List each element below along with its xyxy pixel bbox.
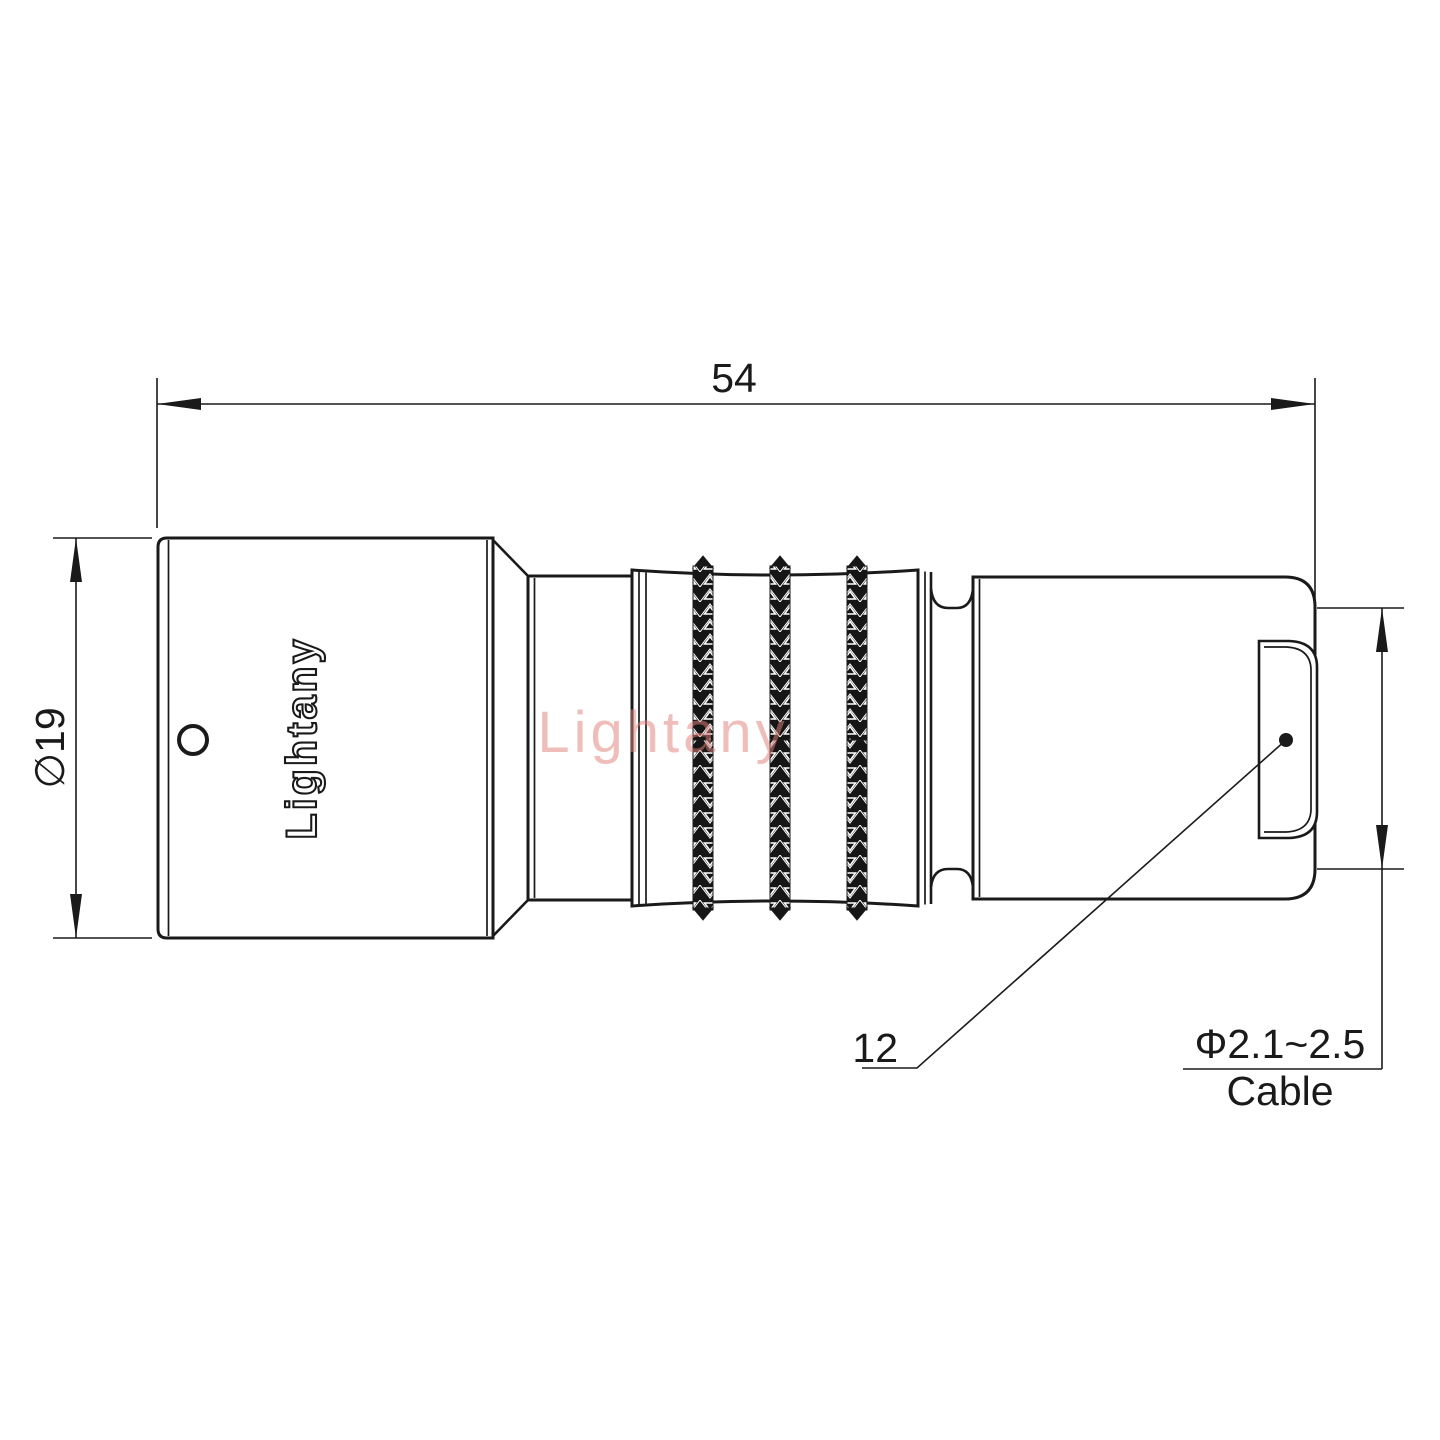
- dimension-rear-face: [1317, 608, 1404, 1069]
- taper-bottom-line: [493, 900, 528, 936]
- body-logo-text: Lightany: [278, 636, 326, 839]
- watermark-text: Lightany: [537, 700, 788, 765]
- neck-bottom-profile: [931, 869, 973, 887]
- dim-value-rear-face: 12: [852, 1025, 898, 1071]
- arrowhead-down: [70, 894, 82, 938]
- technical-drawing-canvas: Lightany 54 ∅19: [0, 0, 1440, 1440]
- cable-word-text: Cable: [1226, 1068, 1333, 1114]
- cable-diameter-range-text: Φ2.1~2.5: [1195, 1021, 1366, 1067]
- arrowhead-up: [70, 538, 82, 582]
- arrowhead-up: [1376, 608, 1388, 652]
- taper-top-line: [493, 540, 528, 576]
- connector-drawing-svg: Lightany 54 ∅19: [0, 0, 1440, 1440]
- dimension-body-diameter: ∅19: [27, 538, 152, 938]
- cable-range-label: Φ2.1~2.5 Cable: [1183, 1021, 1382, 1114]
- latch-hole: [179, 726, 207, 754]
- arrowhead-left: [157, 398, 201, 410]
- neck-top-profile: [931, 589, 973, 608]
- arrowhead-right: [1271, 398, 1315, 410]
- knurl-band-3: [847, 556, 867, 920]
- dim-value-overall-length: 54: [711, 355, 757, 401]
- arrowhead-down: [1376, 825, 1388, 869]
- dim-value-body-diameter: ∅19: [27, 707, 73, 788]
